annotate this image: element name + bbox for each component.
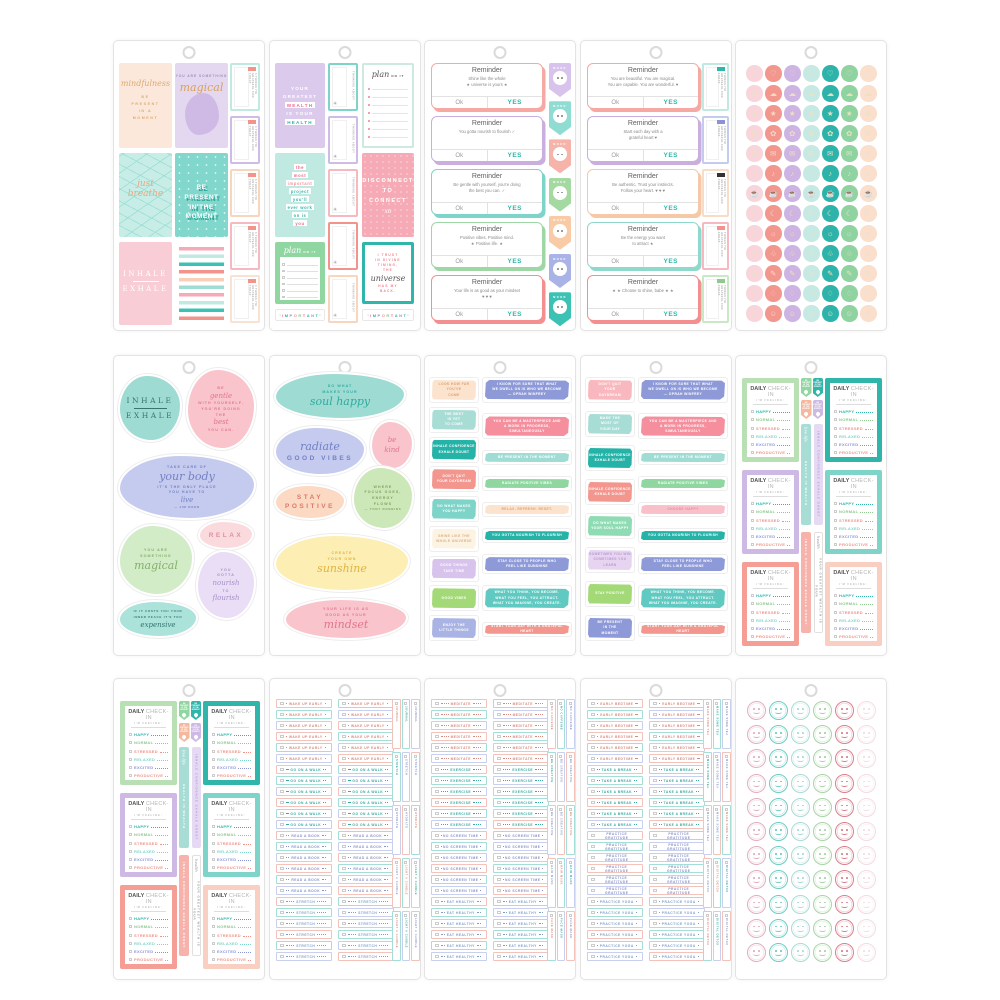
smiley-sticker — [857, 895, 876, 914]
dotted-line — [696, 802, 699, 803]
checkbox — [435, 812, 439, 816]
dotted-line — [348, 791, 351, 792]
smiley-eyes — [753, 708, 759, 710]
dotted-line — [322, 846, 326, 847]
habit-strip: WAKE UP EARLY — [338, 743, 394, 752]
reminder-title: Reminder — [628, 120, 658, 127]
watercolor-quote-sticker: YOUGOTTAnourishTOflourish — [198, 552, 254, 618]
dotted-line — [160, 936, 168, 937]
feeling-row: HAPPY — [129, 729, 168, 737]
dotted-line — [473, 824, 481, 825]
smiley-sticker — [813, 846, 832, 865]
checkbox — [591, 900, 595, 904]
checkbox — [653, 779, 657, 783]
smiley-sticker — [835, 822, 854, 841]
dotted-line — [480, 846, 481, 847]
doodle-icon: ☺ — [864, 310, 872, 318]
checkbox — [212, 750, 215, 753]
checkbox — [497, 724, 501, 728]
smiley-eyes — [797, 708, 803, 710]
doodle-icon: ♢ — [751, 290, 758, 298]
icon-dot-sticker: ♧ — [841, 245, 858, 262]
habit-strip: MEDITATE — [493, 710, 549, 719]
thinking-about-tag: THINKING ABOUT✳ — [328, 222, 358, 270]
mood-banner: MOOD — [549, 101, 571, 135]
eye-dot — [775, 708, 777, 710]
dotted-line — [441, 802, 449, 803]
dotted-line — [597, 725, 599, 726]
checkbox — [591, 790, 595, 794]
dotted-line — [155, 927, 168, 928]
habit-vertical-strip: FACE MASK — [557, 911, 566, 961]
tag-corner-tab — [717, 279, 725, 283]
letter: A — [307, 313, 310, 318]
strip-body: DON'T QUITYOURDAYDREAM — [588, 380, 632, 400]
habit-label: STRETCH — [414, 759, 417, 775]
dotted-line — [348, 857, 352, 858]
feeling-row: EXCITED — [129, 762, 168, 770]
reminder-text: ★ ★ Choose to shine, babe ★ ★ — [612, 288, 674, 309]
smiley-mouth — [841, 832, 848, 836]
dotted-line — [480, 890, 481, 891]
eye-dot — [819, 781, 821, 783]
habit-strip: NO SCREEN TIME — [431, 875, 487, 884]
eye-dot — [841, 950, 843, 952]
dotted-line — [634, 802, 637, 803]
eye-dot — [824, 950, 826, 952]
line — [372, 113, 408, 114]
quote-part: EXHALE — [126, 411, 174, 420]
habit-label: STRETCH — [296, 944, 315, 948]
icon-dot-sticker: ♪ — [746, 165, 763, 182]
checkbox — [212, 758, 215, 761]
dotted-line — [155, 768, 168, 769]
eye-dot — [819, 805, 821, 807]
dotted-line — [597, 824, 600, 825]
eye-dot — [868, 781, 870, 783]
checkbox — [129, 917, 132, 920]
smiley-sticker — [813, 798, 832, 817]
habit-strip: PRACTICE GRATITUDE — [649, 842, 705, 851]
checkbox — [280, 757, 284, 761]
bullet-icon: ▪ — [280, 313, 281, 317]
icon-dot-sticker: ★ — [784, 105, 801, 122]
eye-dot — [557, 268, 559, 270]
dotted-line — [542, 868, 543, 869]
dotted-line — [503, 835, 504, 836]
checkbox — [212, 858, 215, 861]
habit-strip: GO ON A WALK — [338, 820, 394, 829]
habit-strip: MEDITATE — [493, 699, 549, 708]
dotted-line — [240, 852, 251, 853]
checkbox — [653, 768, 657, 772]
dotted-line — [473, 703, 481, 704]
icon-dot-sticker: ☕ — [746, 185, 763, 202]
yes-button: YES — [488, 97, 543, 108]
vertical-strip-sticker: INHALE CONFIDENCE EXHALE DOUBT — [179, 855, 189, 956]
checkbox — [435, 735, 439, 739]
strip-text-line: WHOLE UNIVERSE — [436, 539, 472, 544]
icon-dot-sticker: ♪ — [803, 165, 820, 182]
habit-vertical-strip: DIGITAL DETOX — [703, 911, 712, 961]
title-row: DAILYCHECK-IN — [833, 570, 873, 582]
smiley-mouth — [775, 807, 782, 811]
punch-hole — [805, 361, 818, 374]
dotted-line — [856, 504, 873, 505]
dotted-line — [155, 952, 168, 953]
icon-dot-sticker: ♢ — [746, 285, 763, 302]
checkbox — [404, 755, 407, 758]
caps-line: YOU ARE SOMETHING — [176, 74, 228, 78]
feeling-label: PRODUCTIVE — [217, 865, 246, 870]
habit-label: WAKE UP EARLY — [289, 702, 323, 706]
habit-strip: EXERCISE — [493, 787, 549, 796]
title-bold: DAILY — [833, 386, 849, 392]
quote-part: soul happy — [310, 395, 370, 408]
habit-label: READ A BOOK — [353, 845, 382, 849]
gratitude-tag: 3 THINGS I'M GRATEFUL FOR TODAY — [230, 222, 260, 270]
eye-dot — [868, 950, 870, 952]
quote-part: — TONY ROBBINS — [365, 507, 402, 511]
dotted-line — [634, 824, 637, 825]
eye-dot — [824, 732, 826, 734]
habit-label: EAT HEALTHY — [509, 933, 537, 937]
dotted-line — [165, 960, 168, 961]
eye-dot — [819, 708, 821, 710]
dotted-line — [787, 545, 790, 546]
habit-label: STRETCH — [296, 955, 315, 959]
habit-label: TAKE A BREAK — [664, 768, 694, 772]
smiley-mouth — [775, 735, 782, 739]
habit-label: EARLY BEDTIME — [600, 746, 633, 750]
dotted-line — [286, 857, 290, 858]
dotted-line — [348, 934, 357, 935]
strip-text-line: RADIATE POSITIVE VIBES — [658, 481, 708, 486]
gratitude-tag: 3 THINGS I'M GRATEFUL FOR TODAY — [230, 275, 260, 323]
habit-vertical-strip: JOURNAL — [402, 699, 411, 749]
smiley-mouth — [775, 928, 782, 932]
eye-dot — [846, 781, 848, 783]
icon-dot-sticker: ♡ — [822, 65, 839, 82]
habit-label: EARLY BEDTIME — [662, 724, 695, 728]
habit-strip: EXERCISE — [431, 776, 487, 785]
checkbox — [497, 812, 501, 816]
caps-line: BE — [141, 95, 149, 99]
eye-dot — [780, 756, 782, 758]
list-line — [368, 122, 408, 130]
ok-button: Ok — [432, 203, 488, 214]
quote-part: sunshine — [317, 562, 367, 575]
feeling-row: PRODUCTIVE — [751, 631, 790, 639]
smiley-sticker — [791, 895, 810, 914]
habit-strip: GO ON A WALK — [338, 776, 394, 785]
habit-label: NO SCREEN TIME — [443, 889, 478, 893]
dotted-line — [539, 945, 543, 946]
doodle-icon: ✎ — [808, 270, 814, 278]
icon-dot-sticker: ☾ — [803, 205, 820, 222]
thinking-about-tag: THINKING ABOUT✳ — [328, 116, 358, 164]
dotted-line — [240, 760, 251, 761]
sticker-sheet-1: mindfulnessBEPRESENTIN AMOMENTYOU ARE SO… — [113, 40, 265, 331]
subtitle: I'M FEELING: — [214, 906, 249, 912]
habit-label: PRACTICE YOGA — [600, 933, 634, 937]
habit-label: PRACTICE YOGA — [600, 911, 634, 915]
quote-part: POSITIVE — [285, 503, 335, 510]
strip-text-line: SOMETIMES YOU LEARN — [588, 557, 632, 567]
feeling-row: PRODUCTIVE — [212, 862, 251, 870]
checkbox — [497, 933, 501, 937]
reminder-title: Reminder — [472, 173, 502, 180]
habit-strip: EXERCISE — [431, 765, 487, 774]
script-text: breathe — [128, 189, 164, 199]
checkbox — [591, 757, 595, 761]
feeling-row: NORMAL — [834, 506, 873, 514]
feeling-row: STRESSED — [834, 606, 873, 614]
checkbox — [342, 757, 346, 761]
plan-list — [368, 82, 408, 141]
dotted-line — [238, 768, 251, 769]
reminder-sticker: Reminder★ ★ Choose to shine, babe ★ ★OkY… — [587, 275, 699, 321]
quote-part: STAY — [297, 494, 323, 501]
title-light: CHECK-IN — [768, 478, 791, 490]
dotted-line — [503, 846, 504, 847]
habit-strip: WAKE UP EARLY — [338, 699, 394, 708]
checkbox — [280, 845, 284, 849]
habit-label: HYDRATE — [404, 812, 407, 829]
smiley-face — [553, 186, 567, 200]
smiley-eyes — [863, 877, 869, 879]
doodle-icon: ✿ — [827, 130, 833, 138]
strip-label: INHALE CONFIDENCE EXHALE DOUBT — [804, 534, 808, 631]
quote-part: magical — [134, 559, 178, 572]
doodle-icon: ♢ — [865, 290, 872, 298]
habit-label: EARLY BEDTIME — [662, 746, 695, 750]
habit-label: PRACTICE YOGA — [662, 933, 696, 937]
habit-vertical-strip: JOURNAL — [411, 699, 420, 749]
eye-dot — [561, 230, 563, 232]
subtitle: I'M FEELING: — [214, 814, 249, 820]
doodle-icon: ☕ — [807, 190, 816, 198]
checkbox — [653, 856, 657, 860]
quote-part: GOOD VIBES — [287, 455, 353, 462]
habit-strip: PRACTICE GRATITUDE — [649, 864, 705, 873]
habit-strip: READ A BOOK — [338, 875, 394, 884]
habit-label: WAKE UP EARLY — [351, 713, 385, 717]
list-line — [282, 285, 318, 292]
habit-vertical-strip: NO CAFFEINE — [547, 699, 556, 749]
reminder-buttons: OkYES — [588, 308, 698, 320]
feeling-row: EXCITED — [834, 531, 873, 539]
dotted-line — [635, 714, 637, 715]
doodle-icon: ♡ — [789, 70, 796, 78]
smiley-face — [553, 262, 567, 276]
checkbox — [435, 779, 439, 783]
dotted-line — [317, 923, 326, 924]
habit-strip: EARLY BEDTIME — [649, 699, 705, 708]
quote-part: gentle — [210, 392, 232, 400]
strip-text-line: — OPRAH WINFREY — [508, 392, 546, 397]
eye-dot — [824, 756, 826, 758]
watercolor-quote-sticker: YOU ARESOMETHINGmagical — [120, 526, 192, 594]
dotted-line — [503, 945, 507, 946]
checkbox — [129, 866, 132, 869]
tag-label: THINGS I'M GRATEFUL FOR TODAY — [717, 232, 726, 268]
checkbox — [129, 925, 132, 928]
caps-line: MOMENT — [133, 116, 159, 120]
feeling-row: PRODUCTIVE — [834, 447, 873, 455]
checkbox — [751, 519, 754, 522]
smiley-eyes — [753, 877, 759, 879]
habit-label: MAKE SOME TEA — [725, 812, 728, 842]
smiley-face — [553, 224, 567, 238]
eye-dot — [841, 877, 843, 879]
checkbox — [751, 611, 754, 614]
reminder-text: You are beautiful. You are magical. You … — [608, 76, 679, 97]
subtitle: I'M FEELING: — [753, 399, 788, 405]
eye-dot — [753, 805, 755, 807]
dotted-line — [473, 725, 481, 726]
dotted-line — [777, 604, 790, 605]
habit-strip: PRACTICE GRATITUDE — [649, 875, 705, 884]
eye-dot — [868, 708, 870, 710]
title-row: DAILYCHECK-IN — [128, 801, 168, 813]
dotted-line — [477, 934, 481, 935]
dotted-line — [473, 791, 481, 792]
checkbox — [751, 410, 754, 413]
dotted-line — [348, 956, 357, 957]
dotted-line — [473, 758, 481, 759]
doodle-icon: ✉ — [846, 150, 852, 158]
eye-dot — [868, 926, 870, 928]
habit-label: MAKE SOME TEA — [725, 706, 728, 736]
smiley-eyes — [775, 853, 781, 855]
gratitude-tag: THINGS I'M GRATEFUL FOR TODAY — [702, 275, 729, 323]
doodle-icon: ♪ — [752, 170, 756, 178]
dotted-line — [286, 956, 295, 957]
dotted-line — [387, 736, 388, 737]
dotted-line — [323, 791, 326, 792]
checkbox — [834, 543, 837, 546]
dotted-line — [441, 846, 442, 847]
checkbox — [497, 911, 501, 915]
punch-hole — [494, 361, 507, 374]
smiley-eyes — [797, 829, 803, 831]
dotted-line — [441, 791, 449, 792]
habit-vertical-strip: MAKE SOME TEA — [722, 752, 731, 802]
smiley-mouth — [863, 953, 870, 957]
checkbox — [212, 934, 215, 937]
habit-label: JOURNAL — [414, 706, 417, 723]
reminder-title: Reminder — [472, 226, 502, 233]
habit-label: EAT HEALTHY — [447, 944, 475, 948]
checkbox — [129, 750, 132, 753]
smiley-mouth — [797, 904, 804, 908]
be-present-pennant: BE PRESENTIN THEMOMENT — [801, 378, 812, 397]
habit-label: EXERCISE — [512, 779, 533, 783]
quote-part: radiate — [300, 440, 340, 453]
habit-label: LIGHT A CANDLE — [414, 918, 417, 948]
washi-strip-sticker: STAY CLOSE TO PEOPLE WHOFEEL LIKE SUNSHI… — [483, 555, 571, 573]
dotted-line — [870, 545, 873, 546]
strip-text-line: YOUR SOUL HAPPY — [591, 526, 629, 531]
habit-strip: STRETCH — [276, 930, 332, 939]
checkbox — [435, 955, 439, 959]
quote-part: TAKE CARE OF — [167, 465, 207, 469]
eye-dot — [797, 926, 799, 928]
doodle-icon: ✿ — [865, 130, 871, 138]
checkbox — [591, 933, 595, 937]
dotted-line — [441, 747, 449, 748]
watercolor-quote-sticker: RELAX — [200, 522, 252, 548]
dotted-line — [387, 747, 388, 748]
dotted-line — [597, 747, 599, 748]
habit-label: DIGITAL DETOX — [706, 865, 709, 893]
smiley-sticker — [791, 822, 810, 841]
strip-text-line: YOU GOTTA NOURISH TO FLOURISH — [492, 533, 562, 538]
quote-part: expensive — [140, 621, 175, 629]
sticker-sheet-7: DO WHATMAKES YOURsoul happyradiateGOOD V… — [269, 355, 421, 656]
washi-strip-sticker: DON'T QUITYOURDAYDREAM — [586, 378, 634, 402]
habit-vertical-strip: MAKE SOME TEA — [703, 752, 712, 802]
dotted-line — [160, 752, 168, 753]
habit-label: EAT HEALTHY — [509, 900, 537, 904]
doodle-icon: ♧ — [827, 250, 834, 258]
eye-dot — [557, 77, 559, 79]
habit-strip: EAT HEALTHY — [493, 897, 549, 906]
checkbox — [497, 856, 501, 860]
mood-banner: MOOD — [549, 216, 571, 250]
smiley-sticker — [857, 725, 876, 744]
checkbox — [653, 735, 657, 739]
checkbox — [653, 702, 657, 706]
title-light: CHECK-IN — [851, 478, 874, 490]
dotted-line — [325, 758, 326, 759]
checkbox — [715, 914, 718, 917]
smiley-sticker — [857, 822, 876, 841]
smiley-sticker — [747, 822, 766, 841]
smiley-eyes — [775, 950, 781, 952]
vertical-strip-sticker: INHALE CONFIDENCE EXHALE DOUBT — [801, 532, 811, 633]
eye-dot — [780, 926, 782, 928]
checkbox — [497, 713, 501, 717]
habit-label: STRETCH — [395, 759, 398, 775]
yes-button: YES — [488, 203, 543, 214]
smiley-eyes — [775, 708, 781, 710]
feeling-row: EXCITED — [834, 623, 873, 631]
sticker-sheet-13: MEDITATEMEDITATEMEDITATEMEDITATEMEDITATE… — [424, 678, 576, 980]
quote-part: YOU ARE — [144, 548, 168, 552]
quote-part: TO — [222, 589, 229, 593]
doodle-icon: ★ — [751, 110, 758, 118]
checkbox — [435, 922, 439, 926]
smiley-eyes — [775, 902, 781, 904]
habit-strip: EXERCISE — [493, 820, 549, 829]
eye-dot — [797, 756, 799, 758]
location-pin-icon — [181, 712, 187, 718]
quote-part: YOUR LIFE IS AS — [323, 607, 369, 611]
dotted-line — [441, 901, 445, 902]
habit-label: NO SCREEN TIME — [505, 834, 540, 838]
reminder-text: Shine like the whole ★ universe is yours… — [466, 76, 507, 97]
reminder-sticker: ReminderShine like the whole ★ universe … — [431, 63, 543, 109]
doodle-icon: ♧ — [846, 250, 853, 258]
thinking-about-tag: THINKING ABOUT✳ — [328, 63, 358, 111]
dotted-line — [659, 912, 660, 913]
punch-hole — [183, 361, 196, 374]
habit-label: STRETCH — [358, 933, 377, 937]
daily-check-in-sticker: DAILYCHECK-INI'M FEELING:HAPPYNORMALSTRE… — [203, 885, 260, 969]
habit-strip: MEDITATE — [431, 699, 487, 708]
